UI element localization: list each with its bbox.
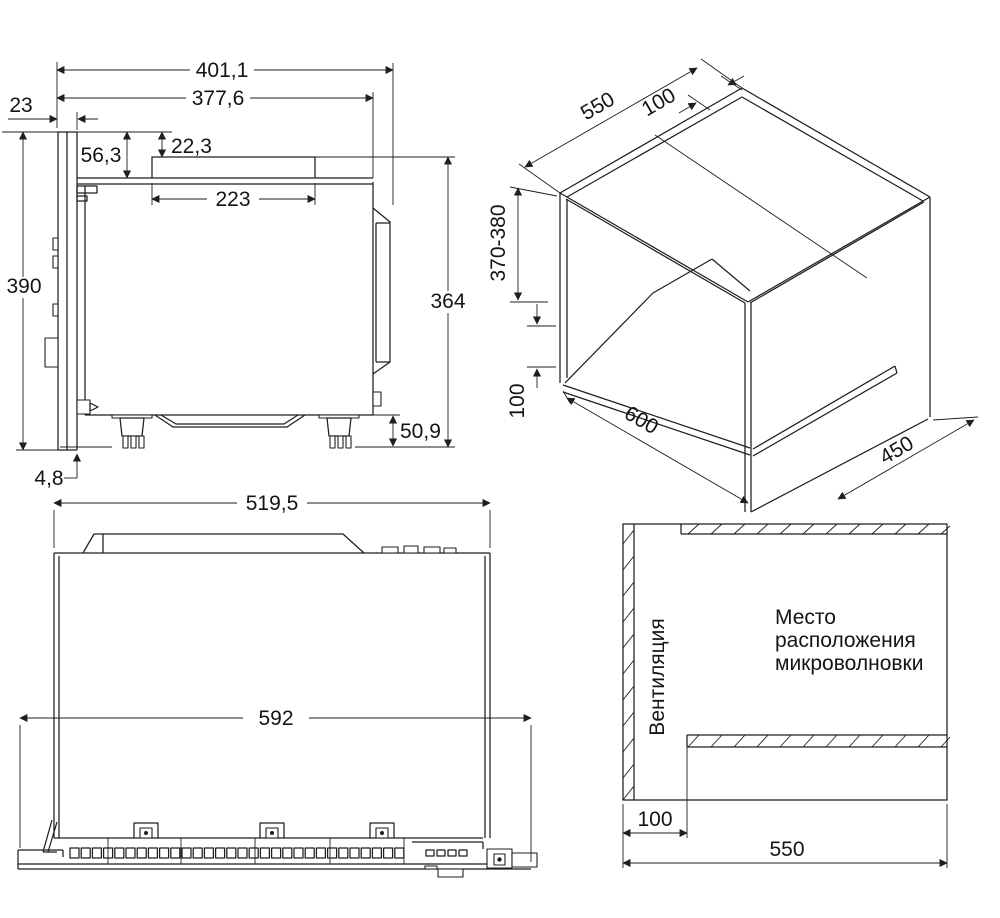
mounting-brackets — [134, 823, 394, 838]
dim-frame-width: 592 — [258, 707, 293, 730]
niche-floor-step — [565, 259, 750, 383]
niche-isometric-view: 550 100 370-380 100 600 450 — [487, 59, 978, 512]
top-vent-box — [152, 157, 315, 178]
door-handle — [45, 338, 58, 367]
dim-door-overhang: 4,8 — [34, 467, 63, 490]
dim-niche-top-depth: 550 — [577, 88, 619, 125]
placement-outline — [623, 524, 950, 838]
dim-top-recess: 56,3 — [81, 144, 122, 167]
dim-foot-height: 50,9 — [400, 420, 441, 443]
technical-drawing-page: 401,1 377,6 23 56,3 22,3 223 390 — [0, 0, 1000, 918]
side-view: 401,1 377,6 23 56,3 22,3 223 390 — [2, 59, 470, 490]
bottom-tray — [155, 415, 305, 427]
top-view-vent-cover — [83, 534, 364, 553]
control-buttons — [382, 546, 456, 553]
niche-outline — [560, 88, 930, 512]
top-view-body — [54, 553, 490, 838]
dim-vent-box-length: 223 — [215, 188, 250, 211]
placement-dimensions: 100 550 — [623, 804, 947, 868]
dim-door-thickness: 23 — [9, 94, 32, 117]
vent-slots-right — [426, 850, 467, 856]
placement-texts: Вентиляция Место расположения микроволно… — [646, 606, 923, 736]
dim-depth-no-door: 377,6 — [192, 87, 245, 110]
ventilation-hatch-left — [623, 530, 634, 800]
door-bottom-detail — [60, 400, 112, 447]
ventilation-label: Вентиляция — [646, 618, 669, 735]
dim-niche-top-setback: 100 — [638, 84, 680, 121]
dim-side-gap: 100 — [637, 808, 672, 831]
rear-plate — [373, 208, 390, 374]
location-label-line3: микроволновки — [775, 652, 923, 675]
side-view-outline — [45, 132, 390, 450]
door-latch-hardware — [425, 849, 537, 877]
placement-view: Вентиляция Место расположения микроволно… — [623, 524, 950, 868]
dim-overall-height: 390 — [6, 275, 41, 298]
side-view-dimensions: 401,1 377,6 23 56,3 22,3 223 390 — [2, 59, 470, 490]
microwave-installation-drawing: 401,1 377,6 23 56,3 22,3 223 390 — [0, 0, 1000, 918]
foot-left — [112, 415, 152, 448]
dim-niche-width: 600 — [620, 402, 662, 439]
door-panel — [58, 132, 77, 450]
top-view: 519,5 592 — [18, 492, 537, 877]
niche-vertical-edges — [560, 193, 930, 512]
dim-overall-depth: 401,1 — [196, 59, 249, 82]
location-label-line2: расположения — [775, 629, 916, 652]
location-label-line1: Место — [775, 606, 836, 629]
door-buttons — [53, 238, 58, 316]
niche-dimensions: 550 100 370-380 100 600 450 — [487, 59, 978, 503]
dim-body-height: 364 — [430, 290, 465, 313]
shelf-hatch — [688, 735, 950, 747]
vent-slot-row — [70, 848, 404, 858]
dim-placement-width: 550 — [769, 838, 804, 861]
oven-body — [77, 178, 373, 415]
shelf-band — [687, 735, 947, 747]
top-view-outline — [18, 534, 537, 877]
dim-niche-base-depth: 450 — [876, 432, 918, 469]
top-panel-hatch — [688, 524, 950, 534]
rear-cord-detail — [373, 392, 381, 406]
niche-top-setback-line — [655, 135, 867, 278]
dim-vent-box-height: 22,3 — [171, 135, 212, 158]
hinge-detail — [77, 186, 97, 201]
dim-body-width: 519,5 — [246, 492, 299, 515]
dim-niche-base-height: 100 — [506, 383, 529, 418]
foot-right — [319, 415, 359, 448]
dim-niche-height: 370-380 — [487, 204, 510, 281]
